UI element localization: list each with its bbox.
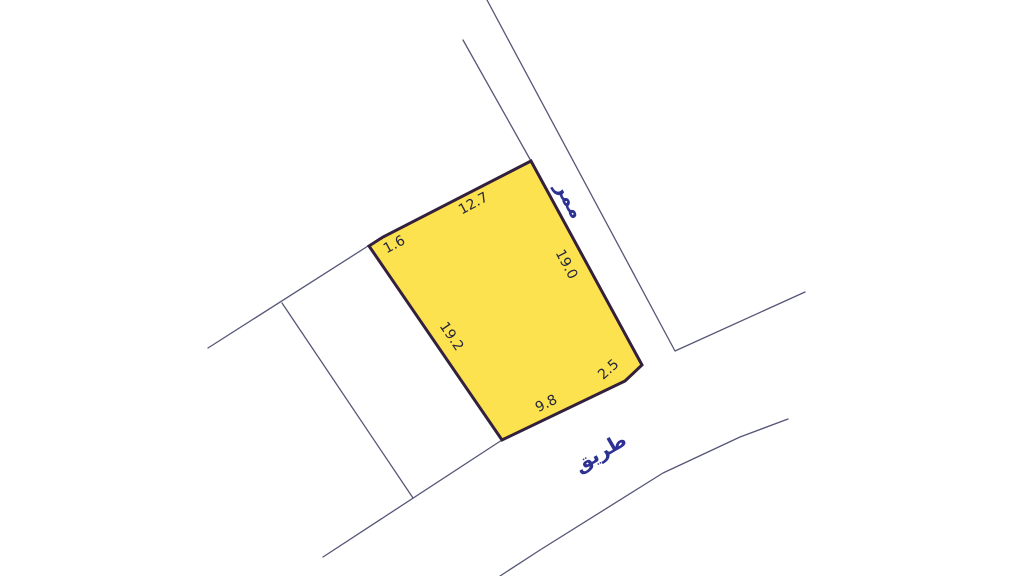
road-north-edge-line: [323, 440, 502, 557]
road-south-edge-line: [500, 419, 788, 576]
parcel-polygon[interactable]: [369, 161, 642, 440]
neighbor-division-line: [282, 303, 413, 498]
survey-plan-canvas: 12.7 1.6 19.0 19.2 9.8 2.5 ممر طريق: [0, 0, 1024, 576]
road-street-label: طريق: [569, 427, 630, 476]
west-boundary-line: [208, 246, 368, 348]
passage-west-boundary-line: [463, 40, 531, 161]
cadastral-map: 12.7 1.6 19.0 19.2 9.8 2.5 ممر طريق: [0, 0, 1024, 576]
